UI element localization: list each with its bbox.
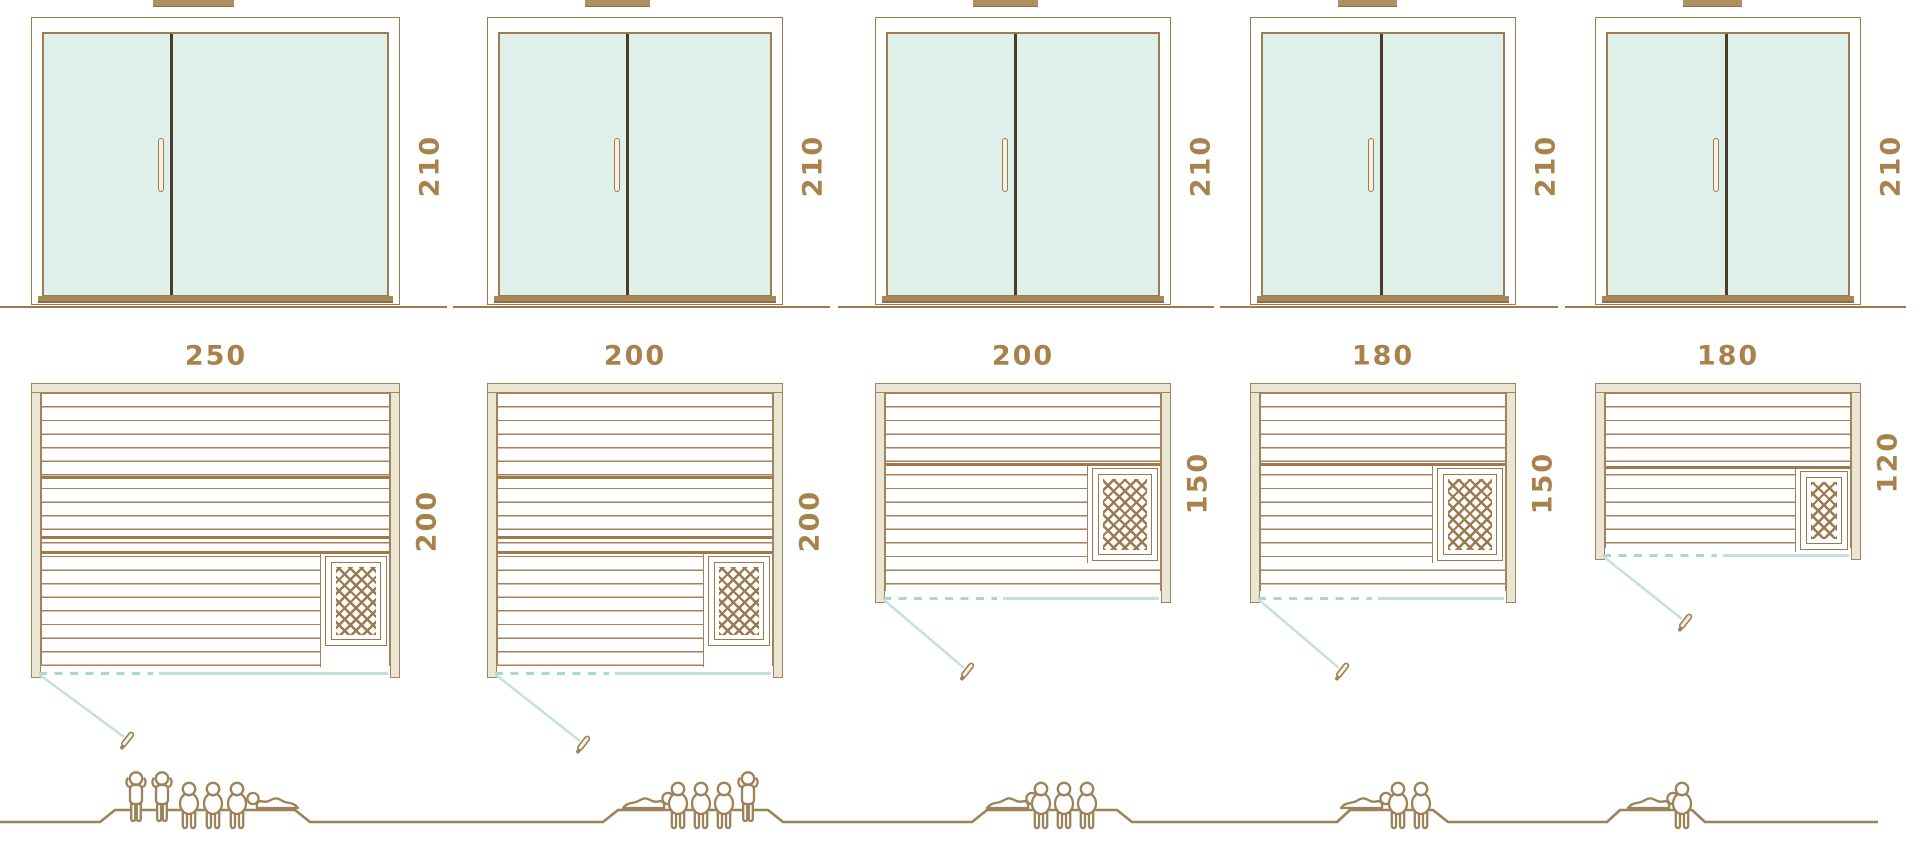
door-swing — [487, 670, 657, 780]
heater-inner-frame — [1098, 474, 1152, 555]
heater-inner-frame — [714, 562, 764, 640]
sauna-model-column-3: 210200150 — [875, 0, 1241, 856]
person-lying-icon — [1628, 793, 1679, 808]
roof-vent — [153, 0, 234, 7]
roof-vent — [1338, 0, 1397, 7]
heater-mesh — [719, 567, 759, 635]
sauna-front-elevation — [31, 15, 400, 306]
bench-edge-line — [498, 476, 772, 479]
plan-interior-benches — [41, 393, 390, 666]
width-dimension-label: 180 — [1697, 341, 1759, 372]
bench-edge-line — [42, 536, 389, 539]
plan-wall-left — [31, 383, 41, 678]
heater-unit — [708, 556, 770, 646]
person-lying-icon — [247, 793, 298, 808]
capacity-ground-path — [0, 810, 1878, 822]
door-handle — [1368, 138, 1374, 192]
plan-wall-left — [1250, 383, 1260, 603]
heater-inner-frame — [1806, 477, 1842, 544]
sauna-model-column-2: 210200200 — [487, 0, 853, 856]
plan-wall-right — [1851, 383, 1861, 560]
plan-wall-top — [487, 383, 783, 393]
threshold — [1602, 296, 1854, 303]
door-swing-line — [40, 675, 124, 737]
depth-dimension-label: 200 — [795, 490, 826, 552]
heater-unit — [325, 556, 387, 646]
person-standing-icon — [738, 772, 757, 821]
bench-edge-line — [498, 536, 772, 539]
floor-plan — [1250, 383, 1516, 603]
capacity-people-strip — [0, 768, 1920, 856]
door-divider — [1380, 34, 1383, 295]
plan-wall-right — [773, 383, 783, 678]
plan-wall-top — [875, 383, 1171, 393]
door-swing — [31, 670, 201, 780]
person-sitting-icon — [1412, 783, 1430, 828]
floor-plan — [875, 383, 1171, 603]
door-divider — [170, 34, 173, 295]
person-lying-icon — [1341, 793, 1392, 808]
threshold — [882, 296, 1164, 303]
person-sitting-icon — [1032, 783, 1050, 828]
elevation-ground-line — [838, 306, 1214, 308]
heater-inner-frame — [1443, 474, 1497, 555]
floor-plan — [31, 383, 400, 678]
person-sitting-icon — [1078, 783, 1096, 828]
plan-interior-benches — [1260, 393, 1506, 591]
plan-wall-top — [1250, 383, 1516, 393]
person-lying-icon — [623, 793, 674, 808]
door-handle — [158, 138, 164, 192]
person-sitting-icon — [204, 783, 222, 828]
heater-bench-area — [1795, 469, 1850, 552]
door-swing-line — [884, 600, 964, 668]
glass-door-panel — [1606, 32, 1850, 297]
glass-door-panel — [42, 32, 389, 297]
width-dimension-label: 180 — [1352, 341, 1414, 372]
width-dimension-label: 250 — [185, 341, 247, 372]
heater-bench-area — [703, 554, 772, 667]
person-sitting-icon — [1055, 783, 1073, 828]
height-dimension-label: 210 — [1186, 135, 1217, 197]
glass-door-panel — [498, 32, 772, 297]
door-divider — [1014, 34, 1017, 295]
door-swing-line — [1259, 600, 1339, 668]
plan-wall-left — [875, 383, 885, 603]
door-handle — [614, 138, 620, 192]
threshold — [38, 296, 393, 303]
sauna-size-diagram: 2102502002102002002102001502101801502101… — [0, 0, 1920, 856]
glass-door-panel — [886, 32, 1160, 297]
plan-wall-left — [1595, 383, 1605, 560]
elevation-ground-line — [1220, 306, 1558, 308]
door-handle — [1713, 138, 1719, 192]
roof-vent — [1683, 0, 1742, 7]
elevation-ground-line — [0, 306, 447, 308]
roof-vent — [973, 0, 1038, 7]
heater-mesh — [1103, 479, 1147, 550]
person-sitting-icon — [692, 783, 710, 828]
roof-vent — [585, 0, 650, 7]
person-sitting-icon — [180, 783, 198, 828]
elevation-ground-line — [1565, 306, 1906, 308]
door-swing — [1595, 552, 1765, 662]
height-dimension-label: 210 — [798, 135, 829, 197]
floor-plan — [1595, 383, 1861, 560]
heater-bench-area — [1432, 466, 1505, 563]
heater-mesh — [336, 567, 376, 635]
heater-bench-area — [320, 554, 389, 667]
person-sitting-icon — [715, 783, 733, 828]
sauna-model-column-5: 210180120 — [1595, 0, 1920, 856]
depth-dimension-label: 150 — [1528, 452, 1559, 514]
height-dimension-label: 210 — [1531, 135, 1562, 197]
person-sitting-icon — [228, 783, 246, 828]
depth-dimension-label: 200 — [412, 490, 443, 552]
plan-interior-benches — [885, 393, 1161, 591]
sauna-front-elevation — [875, 15, 1171, 306]
heater-unit — [1092, 468, 1158, 561]
plan-wall-left — [487, 383, 497, 678]
sauna-front-elevation — [1595, 15, 1861, 306]
bench-edge-line — [42, 476, 389, 479]
heater-mesh — [1811, 482, 1837, 539]
plan-interior-benches — [497, 393, 773, 666]
width-dimension-label: 200 — [604, 341, 666, 372]
plan-wall-right — [1506, 383, 1516, 603]
width-dimension-label: 200 — [992, 341, 1054, 372]
person-standing-icon — [126, 772, 145, 821]
person-sitting-icon — [1389, 783, 1407, 828]
threshold — [494, 296, 776, 303]
height-dimension-label: 210 — [1876, 135, 1907, 197]
sauna-front-elevation — [1250, 15, 1516, 306]
door-swing — [875, 595, 1045, 705]
depth-dimension-label: 150 — [1183, 452, 1214, 514]
sauna-front-elevation — [487, 15, 783, 306]
threshold — [1257, 296, 1509, 303]
heater-bench-area — [1087, 466, 1160, 563]
floor-plan — [487, 383, 783, 678]
door-swing — [1250, 595, 1420, 705]
door-divider — [1725, 34, 1728, 295]
heater-mesh — [1448, 479, 1492, 550]
plan-interior-benches — [1605, 393, 1851, 548]
plan-wall-right — [1161, 383, 1171, 603]
plan-wall-right — [390, 383, 400, 678]
person-sitting-icon — [669, 783, 687, 828]
door-divider — [626, 34, 629, 295]
plan-wall-top — [1595, 383, 1861, 393]
door-swing-line — [1604, 557, 1682, 619]
door-swing-line — [496, 675, 580, 741]
glass-door-panel — [1261, 32, 1505, 297]
depth-dimension-label: 120 — [1873, 431, 1904, 493]
sauna-model-column-4: 210180150 — [1250, 0, 1586, 856]
heater-inner-frame — [331, 562, 381, 640]
person-sitting-icon — [1673, 783, 1691, 828]
heater-unit — [1437, 468, 1503, 561]
person-standing-icon — [152, 772, 171, 821]
height-dimension-label: 210 — [415, 135, 446, 197]
sauna-model-column-1: 210250200 — [31, 0, 470, 856]
person-lying-icon — [987, 793, 1038, 808]
heater-unit — [1800, 471, 1848, 550]
door-handle — [1002, 138, 1008, 192]
elevation-ground-line — [453, 306, 830, 308]
plan-wall-top — [31, 383, 400, 393]
